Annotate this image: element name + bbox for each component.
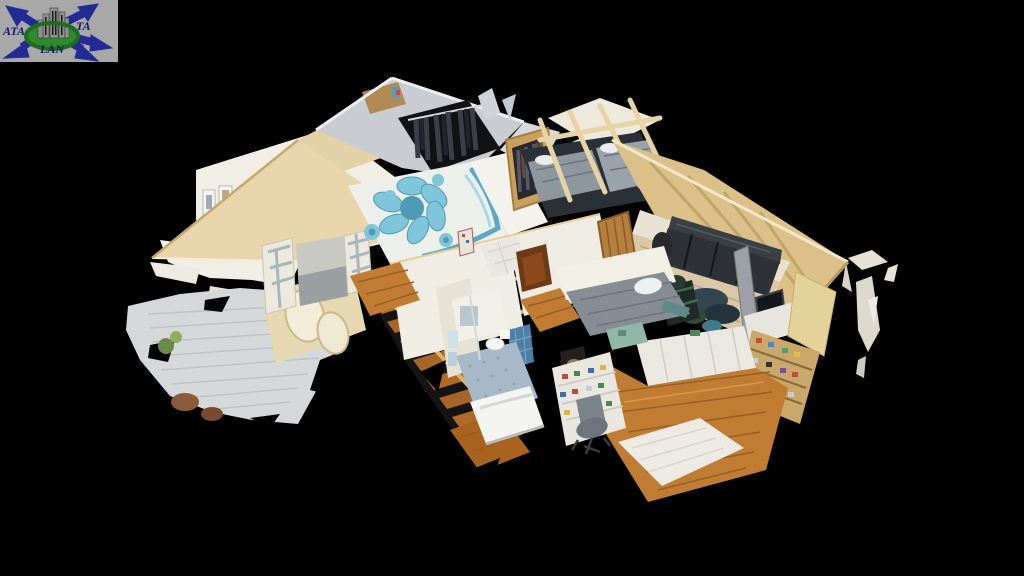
- logo-text-right: TA: [76, 19, 91, 33]
- watermark-logo: ATA TA LAN: [0, 0, 118, 62]
- dollhouse-3d-model[interactable]: [0, 0, 1024, 576]
- dollhouse-viewport[interactable]: ATA TA LAN: [0, 0, 1024, 576]
- logo-text-left: ATA: [2, 24, 25, 38]
- logo-text-bottom: LAN: [39, 42, 65, 56]
